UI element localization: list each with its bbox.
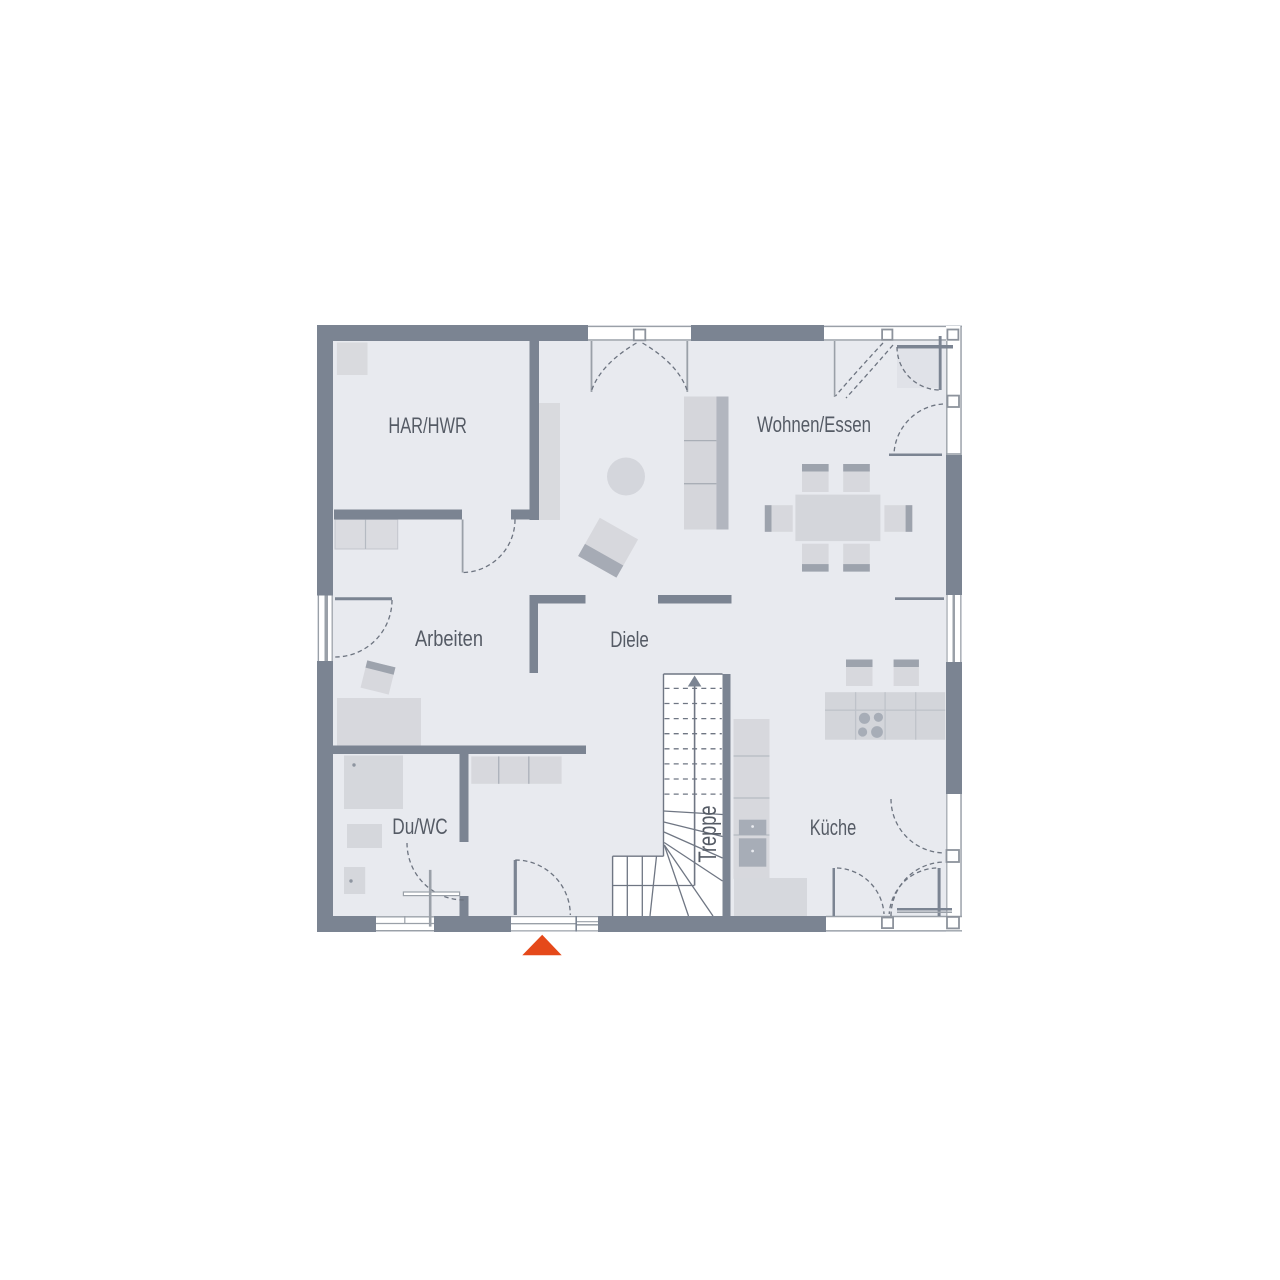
svg-text:Arbeiten: Arbeiten	[415, 626, 483, 651]
svg-text:Diele: Diele	[610, 627, 649, 652]
svg-text:Wohnen/Essen: Wohnen/Essen	[757, 412, 871, 437]
svg-text:Küche: Küche	[810, 815, 857, 840]
svg-text:Treppe: Treppe	[694, 806, 722, 863]
svg-text:Du/WC: Du/WC	[392, 814, 448, 839]
svg-text:HAR/HWR: HAR/HWR	[388, 413, 467, 438]
